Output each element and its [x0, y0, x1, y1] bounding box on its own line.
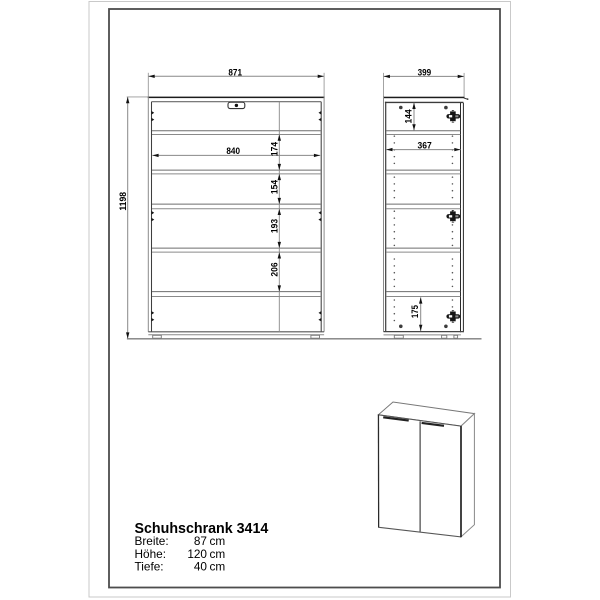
- svg-text:1198: 1198: [118, 192, 128, 211]
- svg-text:206: 206: [270, 262, 280, 276]
- svg-text:Tiefe:: Tiefe:: [135, 560, 164, 574]
- svg-text:193: 193: [270, 219, 280, 233]
- svg-text:840: 840: [226, 146, 240, 156]
- svg-text:144: 144: [403, 109, 413, 124]
- svg-text:154: 154: [270, 179, 280, 194]
- svg-text:399: 399: [418, 68, 432, 78]
- svg-text:175: 175: [410, 305, 420, 318]
- svg-text:871: 871: [228, 68, 242, 78]
- svg-text:174: 174: [270, 141, 280, 156]
- svg-text:cm: cm: [210, 560, 226, 574]
- svg-text:40: 40: [194, 560, 208, 574]
- svg-text:367: 367: [418, 140, 432, 150]
